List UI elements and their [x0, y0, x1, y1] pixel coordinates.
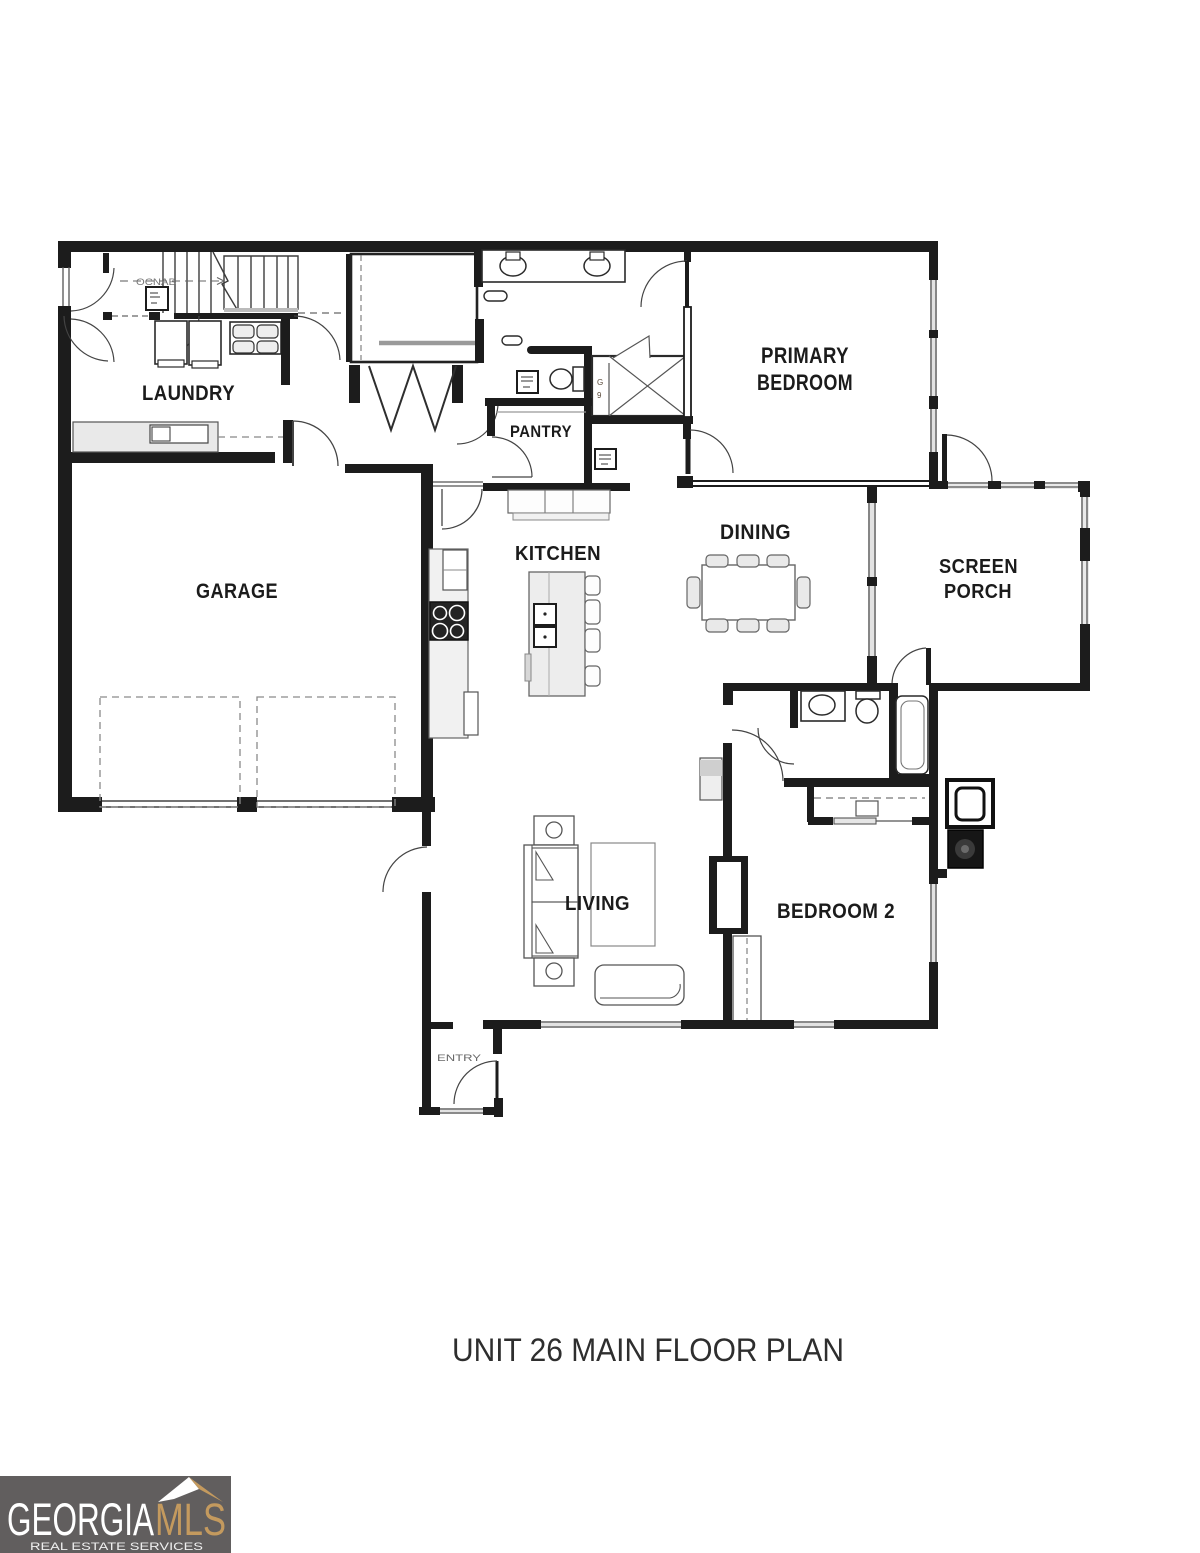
- svg-text:G: G: [597, 378, 603, 387]
- svg-text:9: 9: [597, 391, 602, 400]
- svg-text:PORCH: PORCH: [944, 581, 1012, 603]
- svg-text:SCREEN: SCREEN: [939, 556, 1018, 578]
- svg-text:GARAGE: GARAGE: [196, 580, 278, 603]
- svg-text:REAL ESTATE SERVICES: REAL ESTATE SERVICES: [30, 1541, 203, 1553]
- svg-text:LAUNDRY: LAUNDRY: [142, 382, 235, 405]
- svg-text:KITCHEN: KITCHEN: [515, 543, 601, 565]
- svg-text:PRIMARY: PRIMARY: [761, 343, 849, 368]
- svg-text:OCNAB: OCNAB: [136, 277, 176, 287]
- svg-text:ENTRY: ENTRY: [437, 1053, 481, 1063]
- svg-text:MLS: MLS: [155, 1494, 226, 1545]
- svg-text:BEDROOM: BEDROOM: [757, 370, 853, 395]
- svg-text:LIVING: LIVING: [565, 893, 630, 915]
- svg-text:BEDROOM 2: BEDROOM 2: [777, 900, 895, 923]
- svg-text:GEORGIA: GEORGIA: [7, 1494, 154, 1545]
- svg-text:UNIT 26 MAIN FLOOR PLAN: UNIT 26 MAIN FLOOR PLAN: [452, 1332, 844, 1368]
- svg-text:DINING: DINING: [720, 521, 791, 544]
- svg-text:PANTRY: PANTRY: [510, 422, 572, 441]
